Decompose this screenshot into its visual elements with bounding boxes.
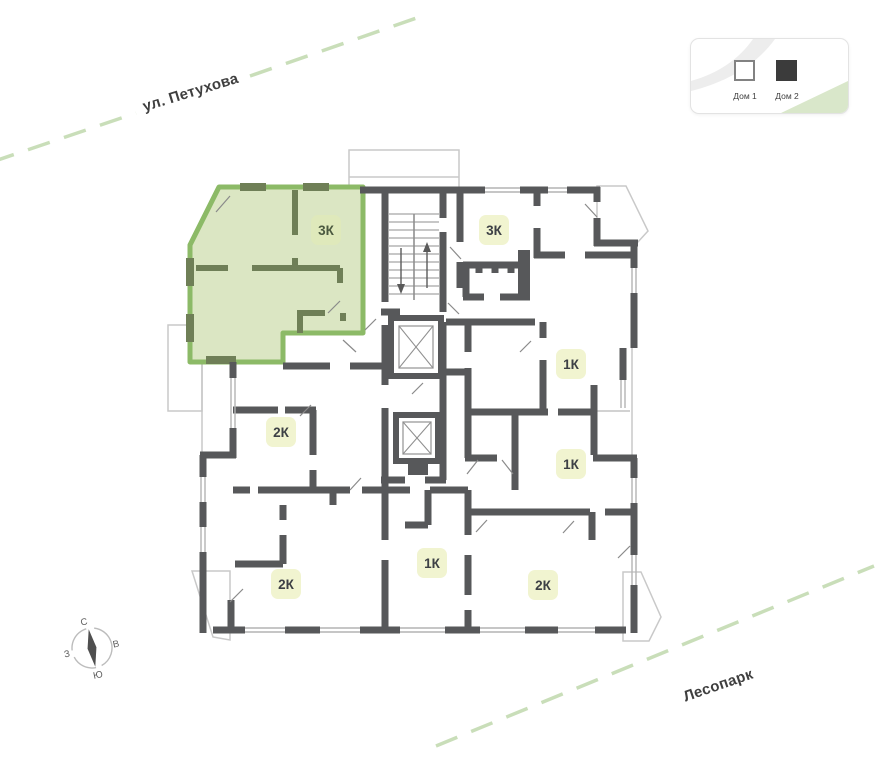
compass-north-label: С (80, 616, 89, 628)
compass: С В З Ю (63, 616, 120, 681)
apartment-badge-label: 3К (486, 223, 503, 238)
selected-apartment[interactable] (186, 183, 363, 364)
legend-house2-label[interactable]: Дом 2 (767, 91, 807, 101)
apartment-badge-label: 2К (273, 425, 290, 440)
apartment-badge-1k-right-mid[interactable]: 1К (556, 449, 586, 479)
apartment-badge-label: 1К (563, 357, 580, 372)
apartment-badge-label: 1К (424, 556, 441, 571)
apartment-badge-label: 2К (535, 578, 552, 593)
street-dash-top-right (250, 14, 428, 76)
balcony-bottom-right (623, 572, 661, 641)
legend-decorations (691, 39, 848, 113)
apartment-badge-3k-selected[interactable]: 3К (311, 215, 341, 245)
compass-east-label: В (112, 638, 120, 650)
park-dash-bottom (436, 566, 874, 746)
apartment-badge-2k-bottom-right[interactable]: 2К (528, 570, 558, 600)
apartment-badge-3k[interactable]: 3К (479, 215, 509, 245)
legend-gray-swoosh (691, 39, 775, 91)
top-parapet (349, 150, 459, 190)
house-legend-card: Дом 1 Дом 2 (690, 38, 849, 114)
apartment-badge-1k-right-top[interactable]: 1К (556, 349, 586, 379)
compass-west-label: З (63, 648, 71, 660)
staircase (389, 214, 439, 300)
elevator-shaft-2 (396, 415, 438, 475)
apartment-badge-1k-bottom-center[interactable]: 1К (417, 548, 447, 578)
balcony-top-right (597, 186, 648, 243)
apartment-badge-label: 1К (563, 457, 580, 472)
apartment-badge-label: 2К (278, 577, 295, 592)
legend-house2-swatch[interactable] (776, 60, 797, 81)
floorplan-page: 3К 3К 1К 1К 2К 2К 1К 2К (0, 0, 893, 767)
street-dash-top-left (0, 113, 136, 162)
elevator-shaft-1 (391, 318, 441, 376)
legend-house1-label[interactable]: Дом 1 (725, 91, 765, 101)
compass-south-label: Ю (92, 669, 104, 682)
street-dashed-lines (0, 14, 874, 746)
floorplan-svg: 3К 3К 1К 1К 2К 2К 1К 2К (0, 0, 893, 767)
apartment-badge-2k-left[interactable]: 2К (266, 417, 296, 447)
legend-house1-swatch[interactable] (734, 60, 755, 81)
compass-needle (84, 629, 99, 668)
apartment-badge-2k-bottom-left[interactable]: 2К (271, 569, 301, 599)
apartment-badge-label: 3К (318, 223, 335, 238)
